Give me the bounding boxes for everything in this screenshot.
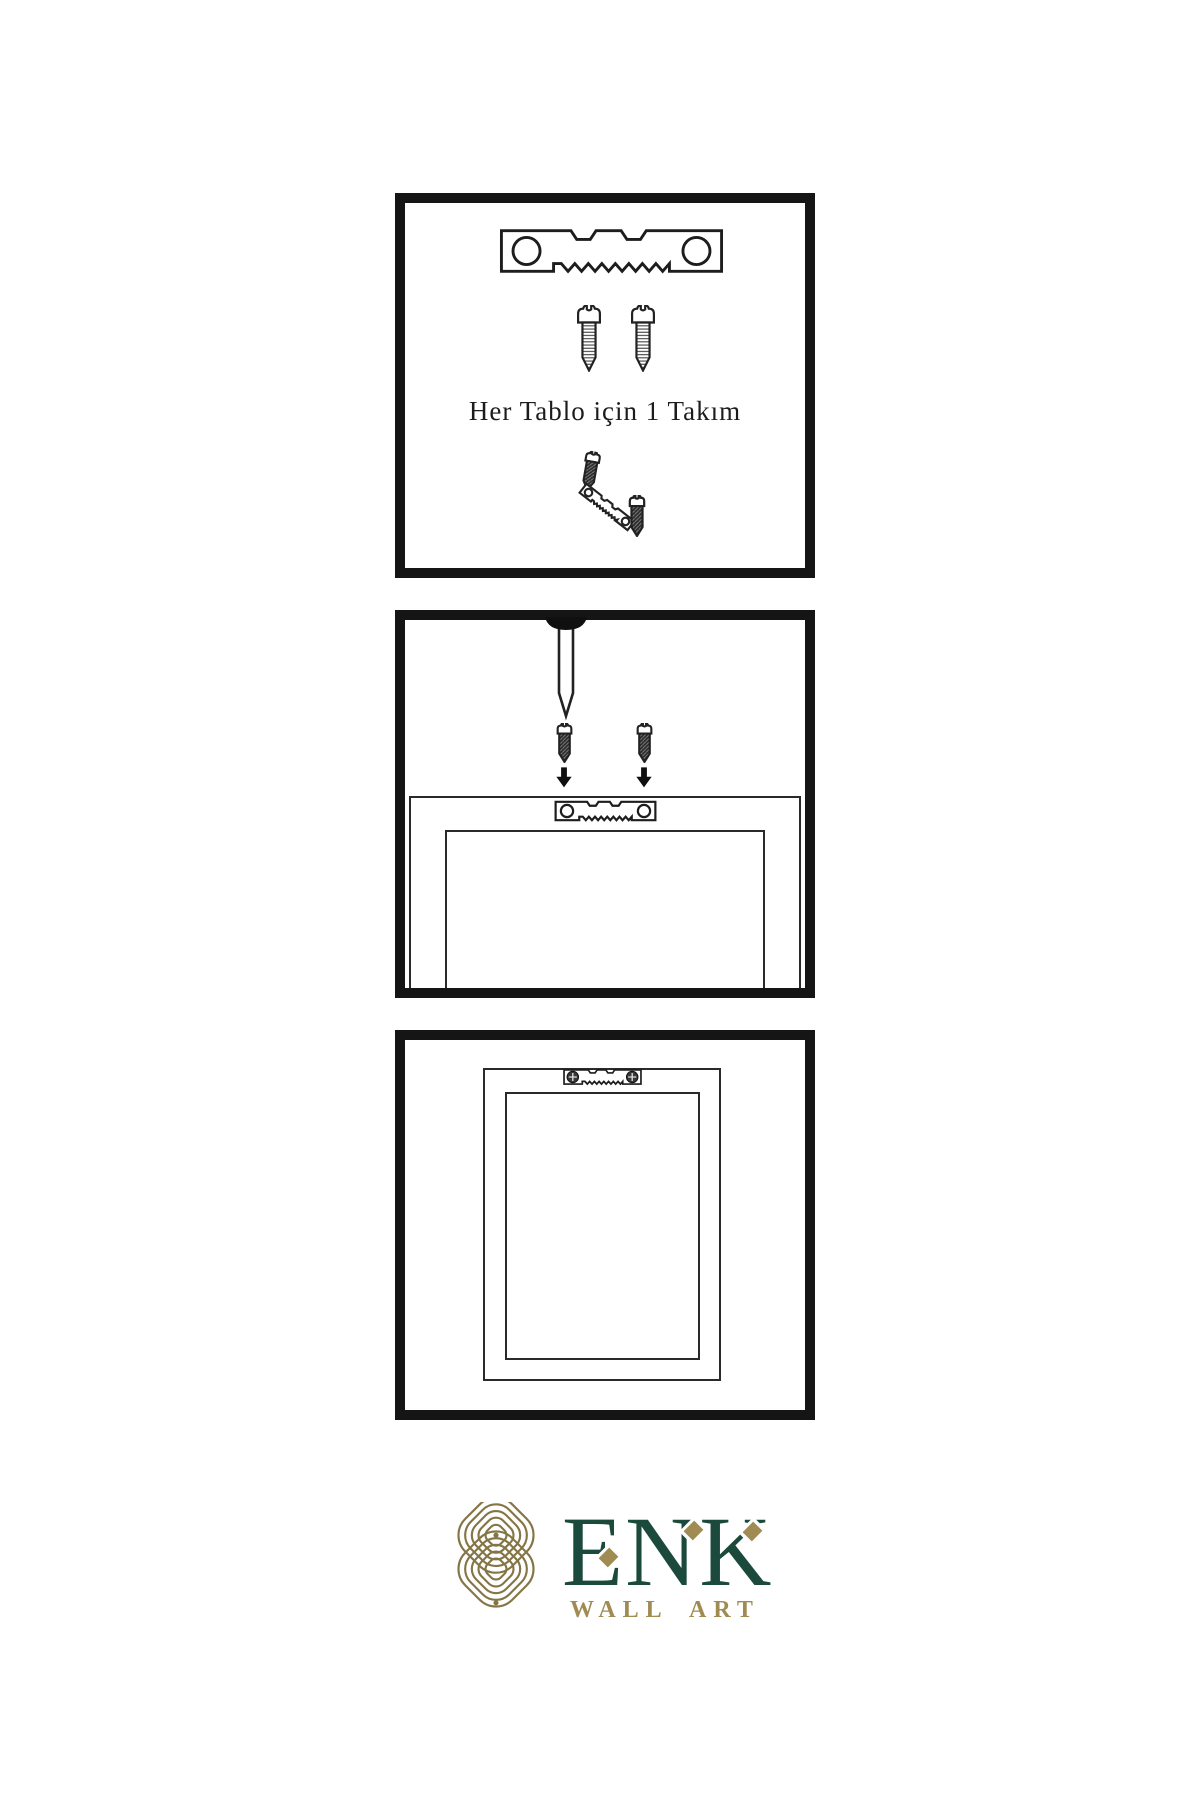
dark-screw-icon: [627, 495, 647, 537]
panel-installation: [395, 610, 815, 998]
screw-icon: [627, 305, 659, 372]
arrow-down-icon: [556, 767, 572, 788]
frame-back-inner: [505, 1092, 700, 1360]
frame-back-inner: [445, 830, 765, 988]
brand-name: ENK: [562, 1508, 802, 1596]
dark-screw-icon: [555, 723, 574, 763]
instruction-sheet: Her Tablo için 1 Takım: [0, 0, 1200, 1800]
sawtooth-hanger-icon: [553, 798, 658, 824]
dark-screw-icon: [635, 723, 654, 763]
screw-icon: [573, 305, 605, 372]
panel-hardware-kit: Her Tablo için 1 Takım: [395, 193, 815, 578]
arrow-down-icon: [636, 767, 652, 788]
sawtooth-hanger-icon: [495, 223, 728, 279]
panel-mounted-frame: [395, 1030, 815, 1420]
brand-subtitle: WALL ART: [570, 1597, 830, 1624]
nail-icon: [544, 617, 588, 721]
sawtooth-hanger-screwed-icon: [562, 1067, 643, 1087]
knot-logo-icon: [432, 1502, 560, 1636]
kit-caption: Her Tablo için 1 Takım: [405, 396, 805, 427]
